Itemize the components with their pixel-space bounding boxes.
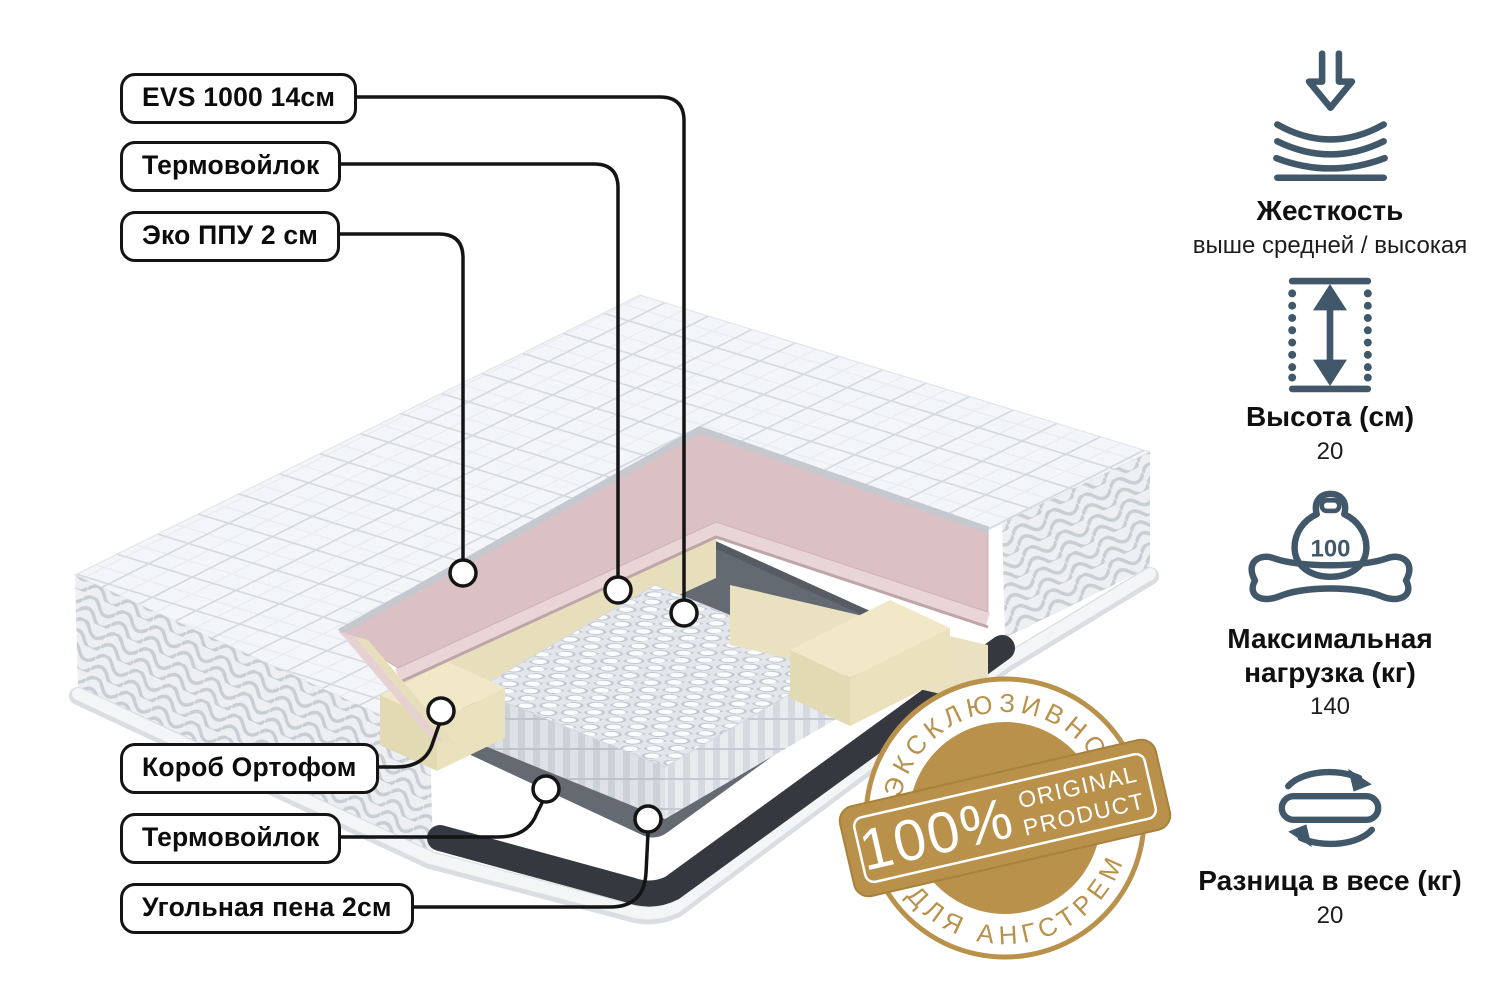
spec-weight-difference: Разница в весе (кг) 20 — [1180, 758, 1480, 931]
callout-dot-eco-ppu — [450, 560, 476, 586]
label-orthofoam-box: Короб Ортофом — [120, 743, 379, 794]
label-thermofelt-bottom: Термовойлок — [120, 813, 341, 864]
spec-firmness-title: Жесткость — [1180, 194, 1480, 228]
spec-height-value: 20 — [1180, 437, 1480, 468]
label-carbon-foam: Угольная пена 2см — [120, 883, 414, 934]
label-eco-ppu: Эко ППУ 2 см — [120, 211, 340, 262]
callout-dot-orthofoam — [428, 698, 454, 724]
spec-max-load-title: Максимальная нагрузка (кг) — [1180, 622, 1480, 689]
height-icon — [1278, 276, 1382, 394]
callout-dot-evs — [671, 600, 697, 626]
callout-dot-thermofelt-bottom — [533, 776, 559, 802]
spec-firmness-value: выше средней / высокая — [1180, 231, 1480, 262]
max-load-icon: 100 — [1243, 486, 1418, 616]
spec-max-load-value: 140 — [1180, 692, 1480, 723]
spec-firmness: Жесткость выше средней / высокая — [1180, 48, 1480, 261]
label-thermofelt-top: Термовойлок — [120, 141, 341, 192]
callout-dot-thermofelt-top — [605, 577, 631, 603]
callout-dot-carbon-foam — [635, 806, 661, 832]
spec-weight-difference-title: Разница в весе (кг) — [1180, 864, 1480, 898]
mattress-infographic: ЭКСКЛЮЗИВНО ДЛЯ АНГСТРЕМ 100% ORIGINAL P… — [0, 0, 1500, 1000]
max-load-icon-number: 100 — [1310, 536, 1350, 563]
firmness-icon — [1263, 48, 1398, 188]
spec-height: Высота (см) 20 — [1180, 276, 1480, 467]
label-evs-1000: EVS 1000 14см — [120, 73, 357, 124]
weight-difference-icon — [1270, 758, 1390, 858]
spec-height-title: Высота (см) — [1180, 400, 1480, 434]
spec-weight-difference-value: 20 — [1180, 901, 1480, 932]
spec-max-load: 100 Максимальная нагрузка (кг) 140 — [1180, 486, 1480, 723]
